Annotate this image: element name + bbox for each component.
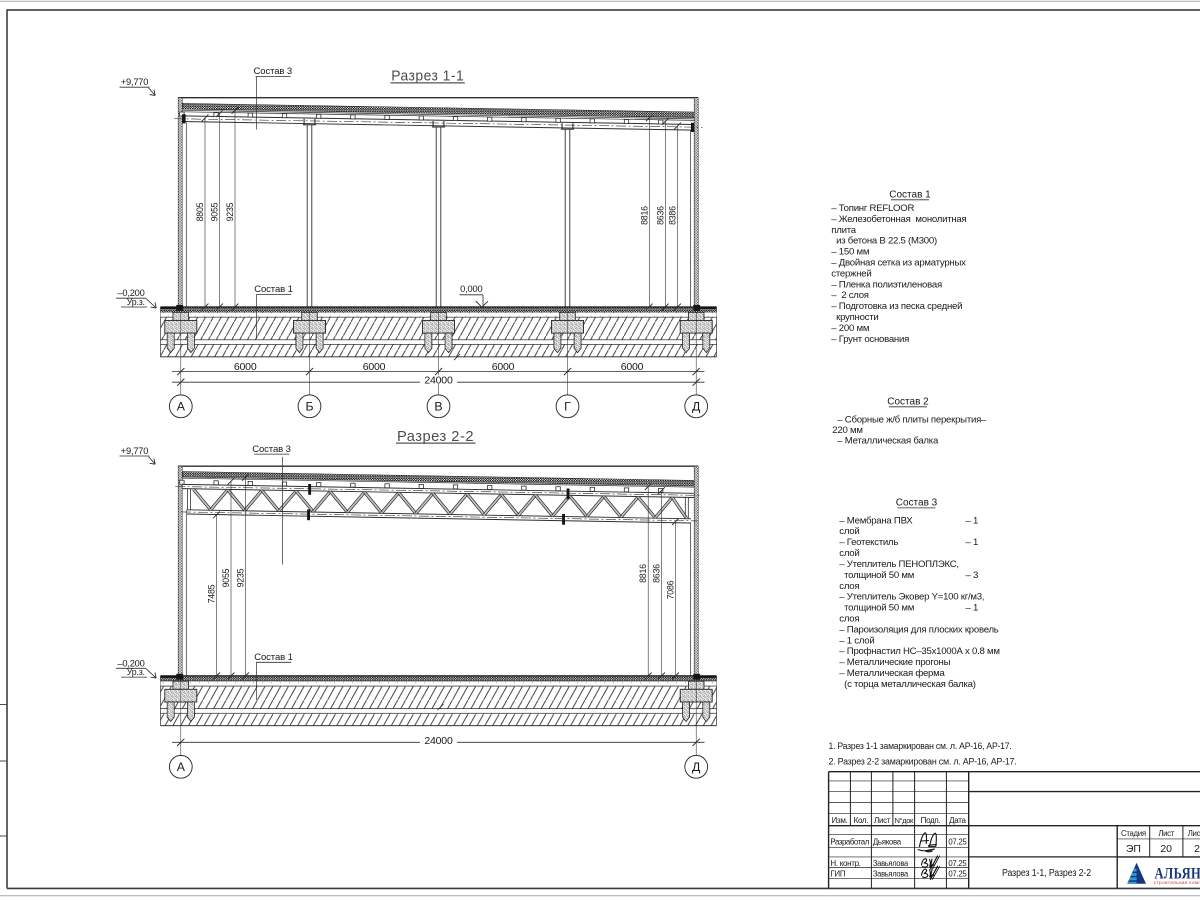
svg-text:слой: слой xyxy=(839,548,859,559)
svg-text:Состав 1: Состав 1 xyxy=(889,189,931,200)
svg-text:6000: 6000 xyxy=(621,361,644,373)
svg-text:плита: плита xyxy=(831,225,856,236)
svg-text:Завьялова: Завьялова xyxy=(873,870,909,879)
svg-text:8816: 8816 xyxy=(638,564,648,583)
svg-text:24000: 24000 xyxy=(424,735,453,747)
svg-text:– 1: – 1 xyxy=(966,537,979,548)
svg-text:– Подготовка из песка средней: – Подготовка из песка средней xyxy=(831,301,962,312)
svg-text:1. Разрез 1-1 замаркирован см.: 1. Разрез 1-1 замаркирован см. л. АР-16,… xyxy=(829,741,1012,752)
svg-text:Дьякова: Дьякова xyxy=(873,838,902,847)
svg-text:8816: 8816 xyxy=(639,206,649,225)
svg-text:– Утеплитель ПЕНОПЛЭКС,: – Утеплитель ПЕНОПЛЭКС, xyxy=(839,559,959,570)
svg-text:– Металлическая балка: – Металлическая балка xyxy=(837,435,939,446)
svg-text:Разрез 1-1, Разрез 2-2: Разрез 1-1, Разрез 2-2 xyxy=(1002,868,1091,879)
svg-text:Д: Д xyxy=(692,760,701,774)
svg-text:Подп.: Подп. xyxy=(921,816,941,825)
svg-text:21: 21 xyxy=(1194,843,1200,855)
svg-text:стержней: стержней xyxy=(831,268,871,279)
svg-text:– 150 мм: – 150 мм xyxy=(831,247,869,258)
svg-text:– 2 слоя: – 2 слоя xyxy=(831,290,869,301)
svg-text:Лист: Лист xyxy=(1158,829,1174,838)
svg-text:Н. контр.: Н. контр. xyxy=(830,859,860,868)
svg-text:– 1: – 1 xyxy=(966,603,979,614)
svg-text:– 1 слой: – 1 слой xyxy=(839,635,874,646)
svg-text:ГИП: ГИП xyxy=(830,870,845,879)
svg-text:Кол.: Кол. xyxy=(854,816,869,825)
svg-text:07.25: 07.25 xyxy=(948,859,967,868)
svg-text:Состав 2: Состав 2 xyxy=(887,396,929,407)
svg-text:6000: 6000 xyxy=(492,361,515,373)
svg-text:– Пленка полиэтиленовая: – Пленка полиэтиленовая xyxy=(831,279,942,290)
svg-text:– Металлическая ферма: – Металлическая ферма xyxy=(839,668,945,679)
svg-text:толщиной 50 мм: толщиной 50 мм xyxy=(839,603,914,614)
svg-text:Г: Г xyxy=(564,400,571,414)
svg-text:слоя: слоя xyxy=(839,614,859,625)
svg-text:9235: 9235 xyxy=(225,202,235,221)
svg-text:2. Разрез 2-2 замаркирован см.: 2. Разрез 2-2 замаркирован см. л. АР-16,… xyxy=(829,756,1017,767)
svg-text:из бетона В 22.5 (М300): из бетона В 22.5 (М300) xyxy=(831,236,937,247)
svg-text:20: 20 xyxy=(1160,843,1172,855)
svg-text:Ур.з.: Ур.з. xyxy=(127,297,145,307)
svg-text:9055: 9055 xyxy=(221,568,231,587)
svg-text:– Двойная сетка из арматурных: – Двойная сетка из арматурных xyxy=(831,258,966,269)
svg-text:07.25: 07.25 xyxy=(948,838,967,847)
svg-text:– 200 мм: – 200 мм xyxy=(831,323,869,334)
svg-text:– 1: – 1 xyxy=(966,515,979,526)
svg-text:Стадия: Стадия xyxy=(1121,829,1146,838)
svg-text:Д: Д xyxy=(692,400,701,414)
svg-text:7485: 7485 xyxy=(207,584,217,603)
svg-text:А: А xyxy=(177,400,186,414)
svg-text:220 мм: 220 мм xyxy=(832,425,862,436)
svg-text:0,000: 0,000 xyxy=(460,284,482,294)
svg-text:Состав 1: Состав 1 xyxy=(254,652,293,663)
svg-text:Состав 3: Состав 3 xyxy=(252,444,291,455)
svg-text:А: А xyxy=(177,760,186,774)
svg-text:– Металлические прогоны: – Металлические прогоны xyxy=(839,657,950,668)
svg-text:Лист: Лист xyxy=(874,816,891,825)
svg-text:– Мембрана ПВХ: – Мембрана ПВХ xyxy=(839,515,913,526)
svg-text:8636: 8636 xyxy=(655,206,665,225)
svg-text:толщиной 50 мм: толщиной 50 мм xyxy=(839,570,914,581)
svg-text:слой: слой xyxy=(839,526,859,537)
svg-text:– 3: – 3 xyxy=(966,570,979,581)
svg-text:N°док: N°док xyxy=(894,816,914,825)
svg-text:– Железобетонная монолитная: – Железобетонная монолитная xyxy=(831,214,966,225)
svg-text:+9,770: +9,770 xyxy=(121,77,149,87)
svg-text:6000: 6000 xyxy=(363,361,386,373)
svg-text:9055: 9055 xyxy=(210,202,220,221)
svg-text:– Утеплитель Эковер Y=100 кг/м: – Утеплитель Эковер Y=100 кг/м3, xyxy=(839,592,984,603)
svg-text:Б: Б xyxy=(305,400,313,414)
svg-text:ЭП: ЭП xyxy=(1126,843,1141,855)
svg-text:Состав 3: Состав 3 xyxy=(254,66,293,77)
svg-text:8636: 8636 xyxy=(652,564,662,583)
svg-text:крупности: крупности xyxy=(831,312,878,323)
svg-text:– Геотекстиль: – Геотекстиль xyxy=(839,537,898,548)
svg-text:Дата: Дата xyxy=(949,816,966,825)
svg-text:6000: 6000 xyxy=(234,361,257,373)
svg-text:+9,770: +9,770 xyxy=(121,446,149,456)
svg-text:Разработал: Разработал xyxy=(830,838,869,847)
svg-text:Состав 1: Состав 1 xyxy=(254,284,293,295)
svg-text:– Профнастил НС–35х1000А х 0.8: – Профнастил НС–35х1000А х 0.8 мм xyxy=(839,646,999,657)
svg-text:– Топинг REFLOOR: – Топинг REFLOOR xyxy=(831,203,914,214)
svg-text:7086: 7086 xyxy=(666,580,676,599)
svg-text:07.25: 07.25 xyxy=(948,870,967,879)
svg-text:Разрез 1-1: Разрез 1-1 xyxy=(391,69,464,85)
svg-text:Состав 3: Состав 3 xyxy=(896,498,938,509)
svg-text:8386: 8386 xyxy=(668,206,678,225)
svg-text:– Грунт основания: – Грунт основания xyxy=(831,334,909,345)
svg-text:Завьялова: Завьялова xyxy=(873,859,909,868)
svg-text:Изм.: Изм. xyxy=(832,816,848,825)
svg-text:Листов: Листов xyxy=(1188,829,1200,838)
svg-text:24000: 24000 xyxy=(424,374,453,386)
svg-text:слоя: слоя xyxy=(839,581,859,592)
svg-text:строительная компания: строительная компания xyxy=(1154,880,1200,885)
svg-text:В: В xyxy=(434,400,442,414)
svg-text:8805: 8805 xyxy=(195,202,205,221)
svg-text:– Сборные ж/б плиты перекрытия: – Сборные ж/б плиты перекрытия– xyxy=(837,414,987,425)
svg-text:Ур.з.: Ур.з. xyxy=(127,667,145,677)
svg-text:(с торца металлическая балка): (с торца металлическая балка) xyxy=(839,679,975,690)
svg-text:9235: 9235 xyxy=(236,568,246,587)
svg-text:– Пароизоляция для плоских кро: – Пароизоляция для плоских кровель xyxy=(839,624,999,635)
